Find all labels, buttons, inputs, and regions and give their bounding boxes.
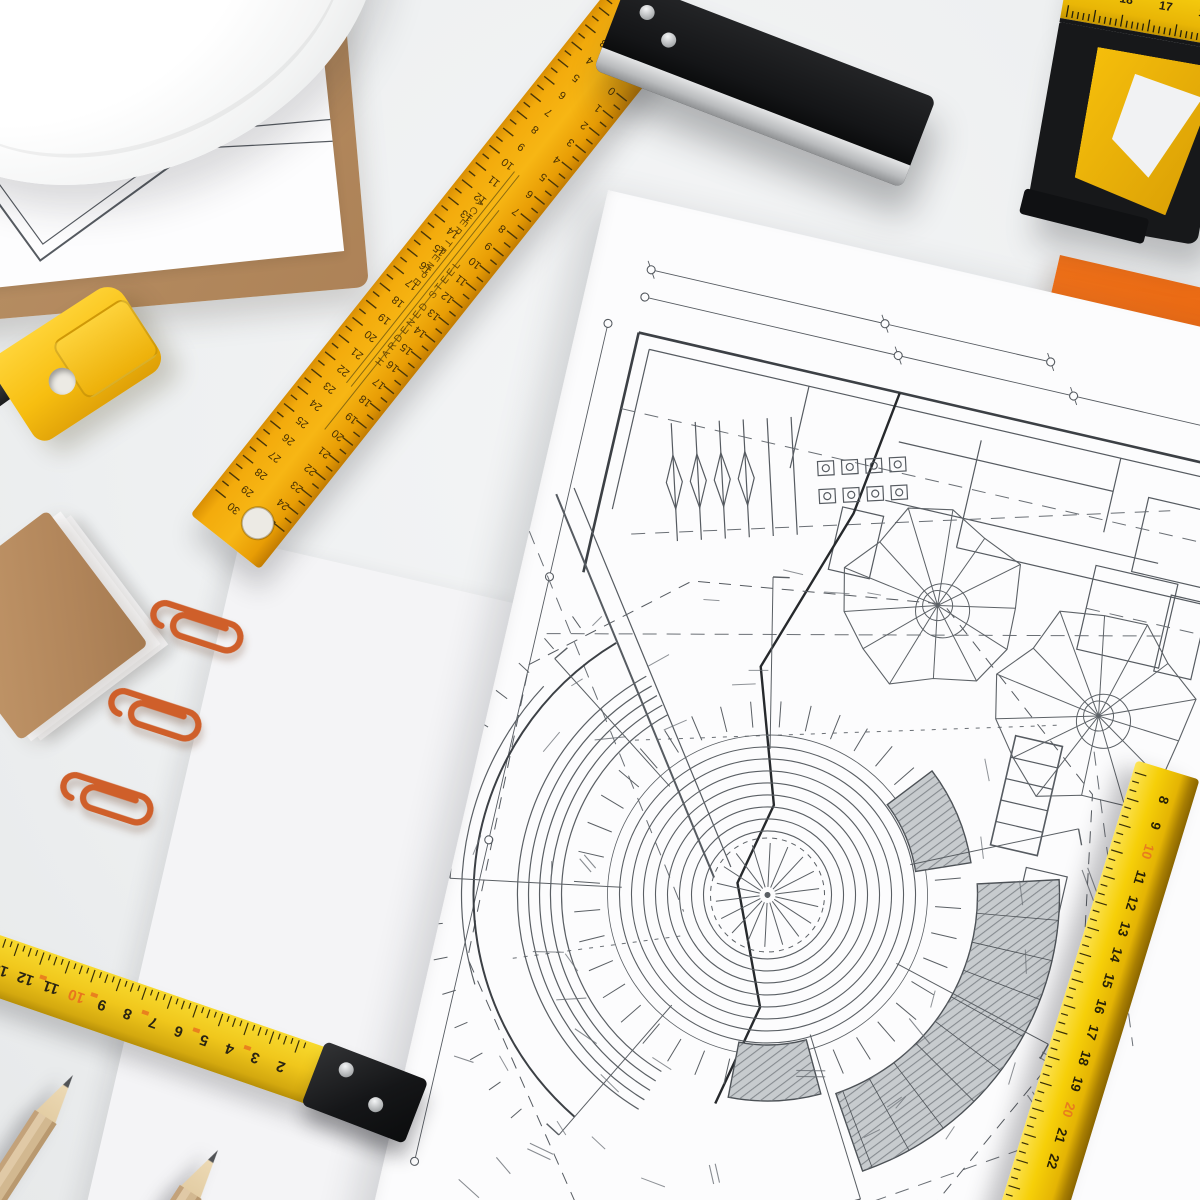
svg-text:5: 5 [198,1030,211,1049]
svg-text:24: 24 [275,495,292,512]
svg-text:4: 4 [584,54,596,67]
svg-text:23: 23 [289,478,306,495]
rivet [337,1060,356,1079]
level-inner-frame [1071,47,1200,221]
svg-text:9: 9 [95,995,108,1014]
svg-text:6: 6 [524,187,536,200]
svg-text:7: 7 [146,1013,159,1032]
svg-text:3: 3 [565,136,577,149]
svg-text:17: 17 [1158,0,1174,14]
svg-text:27: 27 [267,448,284,465]
svg-text:20: 20 [362,327,379,344]
square-stock [594,0,936,188]
level-triangle-cutout [1106,72,1200,185]
svg-text:18: 18 [390,293,407,310]
svg-text:8: 8 [529,123,541,136]
svg-text:11: 11 [1130,868,1149,887]
svg-text:15: 15 [1099,971,1118,990]
svg-text:4: 4 [551,153,563,166]
svg-text:20: 20 [330,427,347,444]
svg-text:28: 28 [253,465,270,482]
svg-text:19: 19 [376,310,393,327]
svg-text:12: 12 [1123,894,1142,913]
svg-text:cm: cm [1072,0,1084,2]
svg-text:24: 24 [308,396,325,413]
svg-text:21: 21 [349,345,366,362]
svg-text:21: 21 [1051,1126,1070,1145]
svg-text:2: 2 [579,119,591,132]
svg-text:26: 26 [280,431,297,448]
svg-text:6: 6 [172,1022,185,1041]
svg-text:17: 17 [371,375,388,392]
svg-text:16: 16 [1091,997,1110,1016]
rivet [366,1095,385,1114]
svg-text:9: 9 [483,239,495,252]
svg-text:3: 3 [249,1048,262,1067]
svg-text:8: 8 [496,222,508,235]
svg-text:18: 18 [357,392,374,409]
architect-desk-scene: 0123456789101112131415161718192021222324… [0,0,1200,1200]
svg-text:14: 14 [1107,946,1126,965]
rivet [659,30,678,49]
spiral-stair [821,489,1035,708]
pencil-body [0,1110,57,1200]
svg-text:0: 0 [606,84,618,97]
svg-text:20: 20 [1059,1100,1078,1119]
svg-text:11: 11 [486,173,502,190]
svg-text:18: 18 [1075,1049,1094,1068]
paper-clip [53,755,179,840]
svg-text:8: 8 [121,1004,134,1023]
svg-text:19: 19 [343,409,360,426]
svg-text:22: 22 [1044,1152,1063,1171]
svg-text:2: 2 [274,1057,287,1076]
svg-text:7: 7 [510,205,522,218]
svg-text:29: 29 [239,482,256,499]
rivet [637,3,656,22]
upper-wing [583,333,1200,716]
svg-text:1: 1 [592,101,604,114]
svg-text:25: 25 [294,414,311,431]
fixture-cluster [663,411,909,541]
svg-text:17: 17 [1083,1023,1102,1042]
svg-text:5: 5 [570,71,582,84]
level-body [1025,22,1200,245]
svg-text:10: 10 [467,254,484,271]
svg-text:22: 22 [335,362,352,379]
svg-text:10: 10 [1138,842,1157,861]
svg-text:5: 5 [537,170,549,183]
svg-text:10: 10 [66,985,87,1007]
corner-level: 19181716cm [1025,0,1200,245]
svg-text:22: 22 [302,461,319,478]
svg-text:30: 30 [225,500,242,517]
svg-text:9: 9 [1147,820,1164,832]
svg-text:6: 6 [557,88,569,101]
svg-text:9: 9 [515,140,527,153]
svg-text:13: 13 [1115,920,1134,939]
svg-text:8: 8 [1155,794,1172,806]
svg-text:13: 13 [0,959,11,981]
svg-text:23: 23 [321,379,338,396]
svg-text:12: 12 [15,968,36,990]
stock-steel-edge [594,47,911,188]
pencil [0,1068,84,1200]
svg-text:21: 21 [316,444,333,461]
svg-text:7: 7 [543,106,555,119]
svg-text:10: 10 [499,155,516,172]
svg-text:4: 4 [222,1039,236,1058]
svg-text:18: 18 [1119,0,1135,7]
svg-text:19: 19 [1067,1075,1086,1094]
